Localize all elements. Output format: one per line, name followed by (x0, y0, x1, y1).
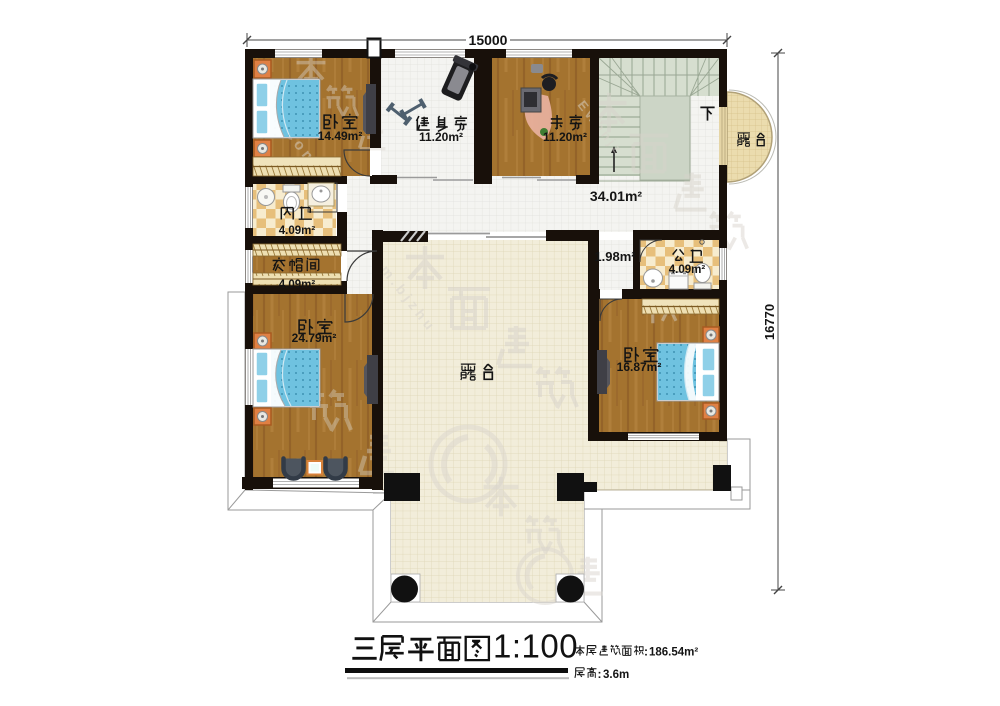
svg-text:16770: 16770 (762, 304, 777, 340)
svg-text:1:100: 1:100 (493, 628, 578, 665)
svg-text:16.87m²: 16.87m² (617, 360, 662, 374)
svg-text:1.98m²: 1.98m² (594, 249, 636, 264)
svg-text:11.20m²: 11.20m² (419, 130, 463, 144)
svg-text::: : (598, 667, 602, 681)
svg-text::: : (644, 645, 648, 659)
svg-text:4.09m²: 4.09m² (669, 264, 706, 276)
svg-text:3.6m: 3.6m (603, 669, 629, 681)
svg-text:34.01m²: 34.01m² (590, 188, 642, 204)
svg-text:4.09m²: 4.09m² (279, 279, 316, 291)
svg-text:186.54m²: 186.54m² (649, 647, 698, 659)
svg-text:11.20m²: 11.20m² (543, 130, 587, 144)
svg-text:15000: 15000 (469, 32, 508, 48)
svg-text:24.79m²: 24.79m² (292, 331, 337, 345)
svg-text:14.49m²: 14.49m² (318, 129, 363, 143)
svg-text:4.09m²: 4.09m² (279, 225, 316, 237)
